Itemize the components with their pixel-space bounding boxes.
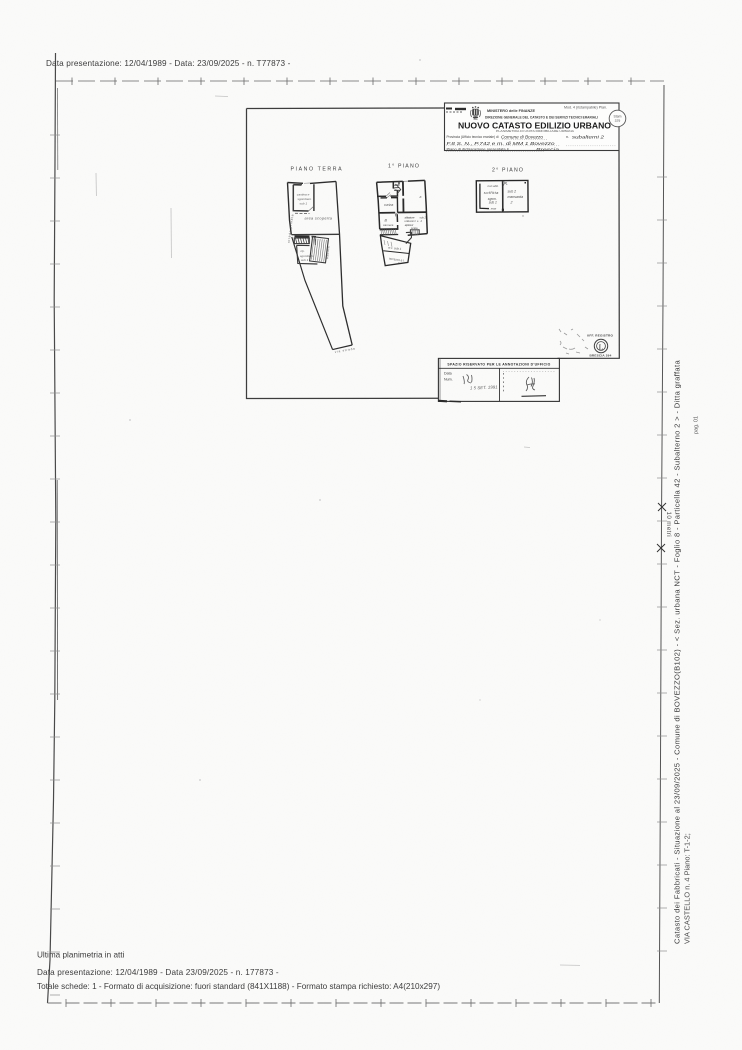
svg-text:Num.: Num.	[444, 378, 453, 382]
svg-text:2: 2	[510, 200, 513, 204]
svg-text:n.: n.	[566, 135, 569, 139]
svg-text:Ultima planimetria in atti: Ultima planimetria in atti	[37, 951, 125, 960]
svg-text:pag. 01: pag. 01	[694, 416, 700, 434]
svg-text:cucina: cucina	[384, 203, 393, 207]
svg-text:PIANO TERRA: PIANO TERRA	[291, 167, 344, 173]
svg-text:MINISTERO delle FINANZE: MINISTERO delle FINANZE	[487, 108, 535, 113]
svg-text:sub 1: sub 1	[489, 201, 497, 205]
svg-text:camera: camera	[383, 223, 394, 227]
svg-text:sub 1: sub 1	[301, 258, 309, 262]
svg-text:Comune di Bovezzo: Comune di Bovezzo	[501, 135, 544, 140]
svg-text:sub 2: sub 2	[420, 215, 427, 219]
svg-text:soffitta: soffitta	[484, 190, 499, 195]
svg-text:unita con il: unita con il	[405, 219, 416, 223]
svg-text:sub 1: sub 1	[300, 201, 308, 205]
svg-text:Data presentazione: 12/04/1989: Data presentazione: 12/04/1989 - Data 23…	[37, 968, 279, 977]
svg-text:rip.: rip.	[301, 249, 305, 253]
svg-text:h. max: h. max	[488, 207, 497, 211]
svg-text:Mod. 4 (ristampabile) Plan.: Mod. 4 (ristampabile) Plan.	[564, 106, 607, 110]
svg-text:1° PIANO: 1° PIANO	[388, 164, 420, 170]
svg-text:1 5 SET. 1991: 1 5 SET. 1991	[470, 385, 498, 391]
svg-text:F.8 S. N., P.742 e m. di MM: F.8 S. N., P.742 e m. di MM 1 Bovezzo	[447, 141, 556, 146]
svg-text:subalterni 2: subalterni 2	[572, 135, 605, 140]
svg-text:scala: scala	[411, 226, 418, 230]
svg-text:abitazione: abitazione	[405, 216, 416, 220]
svg-text:10 metri: 10 metri	[665, 512, 672, 538]
svg-text:Brescia: Brescia	[536, 147, 560, 152]
svg-text:Provincia (Ufficio tecnico era: Provincia (Ufficio tecnico erariale) di	[447, 135, 499, 139]
svg-text:non abit.: non abit.	[488, 184, 499, 188]
svg-text:sub 2: sub 2	[508, 190, 517, 194]
svg-text:BRESCIA 294: BRESCIA 294	[589, 354, 611, 358]
svg-text:PLANIMETRIA DI UNITA IMMOBILIA: PLANIMETRIA DI UNITA IMMOBILIARE URBANA	[496, 129, 574, 133]
svg-text:Stam: Stam	[614, 115, 622, 119]
svg-text:s. 2: s. 2	[417, 219, 423, 223]
svg-text:VIA CASTELLO n. 4 Piano: T-1-2: VIA CASTELLO n. 4 Piano: T-1-2;	[683, 833, 692, 944]
svg-text:Catasto dei Fabbricati - Situa: Catasto dei Fabbricati - Situazione al 2…	[673, 360, 682, 944]
svg-text:Totale schede: 1 - Formato di: Totale schede: 1 - Formato di acquisizio…	[37, 982, 440, 991]
svg-text:sgombero: sgombero	[298, 197, 312, 201]
svg-text:379: 379	[615, 119, 621, 123]
svg-text:a: a	[420, 195, 422, 199]
svg-text:Data: Data	[444, 372, 452, 376]
svg-text:area scoperta: area scoperta	[305, 216, 333, 220]
svg-text:mansarda: mansarda	[508, 195, 524, 199]
svg-text:Piano di dichiarazione present: Piano di dichiarazione presentata il	[447, 148, 509, 152]
svg-text:2° PIANO: 2° PIANO	[492, 168, 524, 174]
svg-text:UFF. REGISTRO: UFF. REGISTRO	[587, 333, 614, 337]
svg-text:DIREZIONE GENERALE DEL CATASTO: DIREZIONE GENERALE DEL CATASTO E DEI SER…	[485, 115, 598, 119]
svg-text:SPAZIO RISERVATO PER LE ANNOTA: SPAZIO RISERVATO PER LE ANNOTAZIONI D'UF…	[447, 363, 550, 367]
svg-text:L: L	[599, 342, 604, 351]
svg-text:Data presentazione: 12/04/1989: Data presentazione: 12/04/1989 - Data: 2…	[46, 59, 291, 68]
